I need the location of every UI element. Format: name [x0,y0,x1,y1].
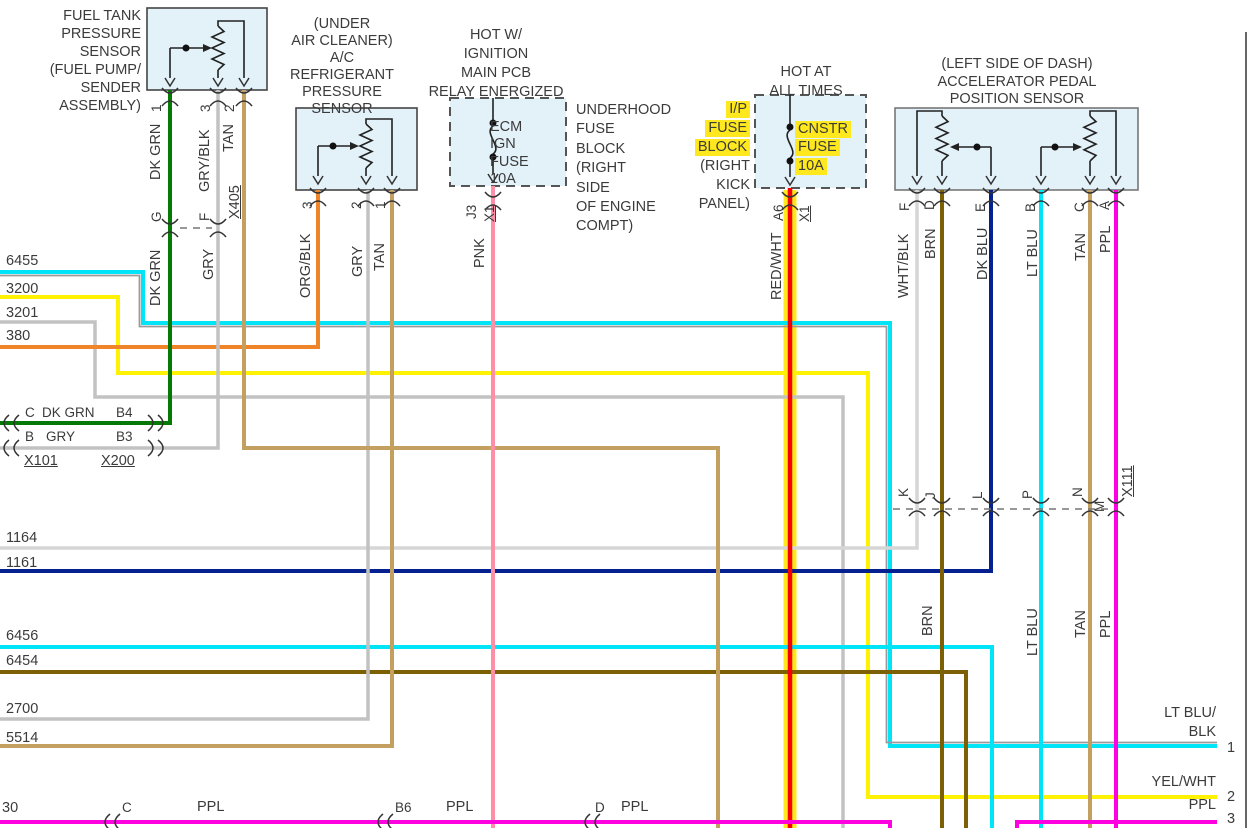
wire-1161-number: 1161 [6,555,37,572]
ecm-fuse-label: ECM IGN FUSE 10A [490,119,529,188]
pin1-number: 1 [1227,740,1235,757]
dkgrn-lower-label: DK GRN [149,250,163,306]
junction-dot [974,144,981,151]
pin2-number: 2 [1227,789,1235,806]
wire-6456-number: 6456 [6,628,38,645]
wire-5514-number: 5514 [6,730,38,747]
ac-pin2-number: 2 [350,201,364,209]
accel-pinf-color: WHT/BLK [897,234,911,298]
wire-6455-number: 6455 [6,253,38,270]
x200-pin-b4: B4 [116,404,133,421]
wire-30-ppl-label3: PPL [621,799,648,816]
ip-fuse-block-line2: FUSE [705,120,750,137]
x405-pin-f: F [198,213,212,221]
pin1-color-label2: BLK [1189,724,1216,741]
wire-2700-number: 2700 [6,701,38,718]
wire-1164-number: 1164 [6,530,37,547]
accel-pin-f: F [898,203,912,211]
ip-fuse-block-line1: I/P [726,101,750,118]
x111-pin-p: P [1021,490,1035,499]
ac-pin3-color: ORG/BLK [299,234,313,298]
ppl-lower-label: PPL [1099,611,1113,638]
ac-pin1-color: TAN [373,243,387,271]
junction-dot [787,124,794,131]
cnstr-x1-label: X1 [798,205,812,222]
pin2-color-label: YEL/WHT [1152,774,1216,791]
wire-6454-brn [0,672,966,828]
accel-pine-color: DK BLU [976,228,990,280]
pin3-color-label: PPL [1189,797,1216,814]
wire-30-ppl-label2: PPL [446,799,473,816]
junction-dot [1052,144,1059,151]
wire-380-number: 380 [6,328,30,345]
x111-pin-k: K [897,488,911,497]
x111-pin-n: N [1071,487,1085,497]
fuel-sensor-title: FUEL TANK PRESSURE SENSOR (FUEL PUMP/ SE… [0,7,141,115]
brn-lower-label: BRN [921,605,935,636]
x405-pin-g: G [150,211,164,222]
cnstr-fuse-line1: CNSTR [795,121,851,138]
connector-x101-label: X101 [24,453,58,470]
ip-fuse-block-line6: PANEL) [699,196,750,213]
connector-x200-label: X200 [101,453,135,470]
cnstr-fuse-line3: 10A [795,158,827,175]
accel-pind-color: BRN [924,228,938,259]
wire-30-number: 30 [2,800,18,817]
accel-pin-c: C [1073,202,1087,212]
x111-pin-m: M [1093,501,1107,512]
accel-sensor-title: (LEFT SIDE OF DASH) ACCELERATOR PEDAL PO… [937,56,1097,109]
junction-dot [183,45,190,52]
junction-dot [787,158,794,165]
x111-pin-j: J [924,492,938,499]
pin3-number: 3 [1227,811,1235,828]
x111-pin-l: L [971,491,985,499]
wire-3200-number: 3200 [6,281,38,298]
accel-pin-b: B [1024,203,1038,212]
x101-pin-b: B [25,428,34,445]
accel-pinb-color: LT BLU [1026,229,1040,277]
hot-at-all-times-label: HOT AT ALL TIMES [756,63,856,101]
ip-fuse-block-line5: KICK [716,177,750,194]
ecm-hot-label: HOT W/ IGNITION MAIN PCB RELAY ENERGIZED [426,26,566,102]
connector-x111-label: X111 [1121,465,1135,497]
ecm-x1-label: X1 [483,205,497,222]
wire-6455-ltblu-blk [0,272,1217,746]
fuel-pin1-color: DK GRN [149,124,163,180]
accel-pin-d: D [923,200,937,210]
ac-pin3-number: 3 [301,201,315,209]
fuel-pin2-number: 2 [223,104,237,112]
connector-x405-label: X405 [228,185,242,219]
ac-pin1-number: 1 [374,201,388,209]
fuel-pin1-number: 1 [150,104,164,112]
accel-pin-a: A [1098,201,1112,210]
wire-30-ppl [0,822,890,828]
x200-pin-b3: B3 [116,428,133,445]
pin1-color-label: LT BLU/ [1164,705,1216,722]
ecm-pin-j3: J3 [465,205,479,219]
ip-fuse-block-line4: (RIGHT [700,158,750,175]
wire-30-pin-d: D [595,799,605,816]
fuel-pin2-color: TAN [222,124,236,152]
tan-lower-label: TAN [1074,610,1088,638]
wire-30-pin-b6: B6 [395,799,412,816]
underhood-fuse-block-label: UNDERHOOD FUSE BLOCK (RIGHT SIDE OF ENGI… [576,101,671,237]
redwht-color-label: RED/WHT [770,232,784,300]
wire-30-pin-c: C [122,799,132,816]
wire-30-ppl-label1: PPL [197,799,224,816]
ac-pin2-color: GRY [351,246,365,277]
accel-sensor-box [895,108,1138,190]
junction-dot [330,143,337,150]
accel-pinc-color: TAN [1074,233,1088,261]
fuel-pin3-number: 3 [199,104,213,112]
wiring-diagram: FUEL TANK PRESSURE SENSOR (FUEL PUMP/ SE… [0,0,1252,828]
ip-fuse-block-line3: BLOCK [695,139,750,156]
fuel-pin3-color: GRY/BLK [198,129,212,192]
cnstr-fuse-line2: FUSE [795,139,840,156]
x101-pin-c: C [25,404,35,421]
accel-pin-e: E [974,203,988,212]
pnk-color-label: PNK [473,238,487,268]
wire-3201-number: 3201 [6,305,38,322]
ltblu-lower-label: LT BLU [1026,608,1040,656]
x101-gry-label: GRY [46,428,75,445]
gry-lower-label: GRY [202,249,216,280]
cnstr-pin-a6: A6 [772,204,786,221]
wire-6454-number: 6454 [6,653,38,670]
x101-dkgrn-label: DK GRN [42,404,95,421]
accel-pina-color: PPL [1099,226,1113,253]
ac-sensor-title: (UNDER AIR CLEANER) A/C REFRIGERANT PRES… [276,16,408,118]
